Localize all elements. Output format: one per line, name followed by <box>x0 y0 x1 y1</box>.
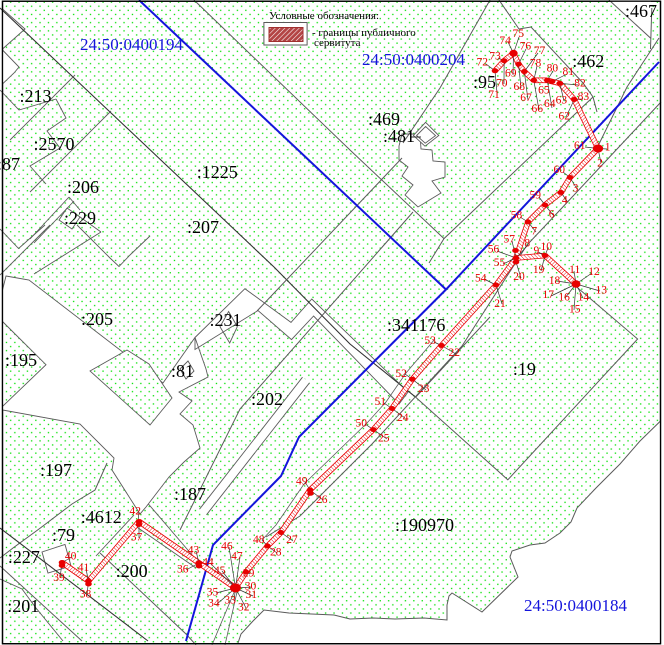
svg-text:18: 18 <box>549 275 561 287</box>
svg-text:35: 35 <box>207 587 219 599</box>
svg-text::229: :229 <box>64 208 96 228</box>
svg-text:7: 7 <box>531 225 537 237</box>
svg-text:78: 78 <box>530 57 542 69</box>
svg-text:68: 68 <box>514 81 526 93</box>
svg-text:61: 61 <box>574 140 586 152</box>
svg-text:40: 40 <box>65 551 77 563</box>
svg-text:82: 82 <box>574 78 586 90</box>
svg-text:33: 33 <box>224 595 236 607</box>
svg-text:36: 36 <box>177 564 189 576</box>
svg-text:6: 6 <box>549 209 555 221</box>
svg-text:42: 42 <box>129 506 141 518</box>
svg-text:75: 75 <box>513 28 525 40</box>
svg-text:29: 29 <box>243 568 255 580</box>
svg-text::1225: :1225 <box>197 162 238 182</box>
svg-text::231: :231 <box>210 310 242 330</box>
svg-text:51: 51 <box>375 396 387 408</box>
svg-text:14: 14 <box>578 292 590 304</box>
svg-text:48: 48 <box>253 534 265 546</box>
svg-text:43: 43 <box>188 545 200 557</box>
svg-text:26: 26 <box>316 494 328 506</box>
svg-text:3: 3 <box>573 183 579 195</box>
svg-text:8: 8 <box>524 237 530 249</box>
svg-text::190970: :190970 <box>395 515 454 535</box>
svg-text:58: 58 <box>511 210 523 222</box>
svg-text:сервитута: сервитута <box>314 37 361 49</box>
svg-text:44: 44 <box>202 557 214 569</box>
svg-text:50: 50 <box>355 418 367 430</box>
svg-text:39: 39 <box>53 572 65 584</box>
svg-text:10: 10 <box>540 241 552 253</box>
svg-text::19: :19 <box>513 359 536 379</box>
svg-text:28: 28 <box>270 547 282 559</box>
svg-text:63: 63 <box>556 95 568 107</box>
svg-text:32: 32 <box>238 601 250 613</box>
svg-text:1: 1 <box>605 141 611 153</box>
svg-text:13: 13 <box>595 284 607 296</box>
svg-text::195: :195 <box>5 350 37 370</box>
svg-text:4: 4 <box>562 195 568 207</box>
svg-text::201: :201 <box>7 596 39 616</box>
svg-text::467: :467 <box>625 1 657 21</box>
svg-text::207: :207 <box>187 217 219 237</box>
svg-text::481: :481 <box>383 126 415 146</box>
svg-text:66: 66 <box>531 103 543 115</box>
svg-text:54: 54 <box>475 272 487 284</box>
svg-text:67: 67 <box>520 92 532 104</box>
svg-text:57: 57 <box>504 234 516 246</box>
svg-text:56: 56 <box>488 243 500 255</box>
svg-text::206: :206 <box>67 177 99 197</box>
svg-text::197: :197 <box>40 460 72 480</box>
svg-text:74: 74 <box>499 35 511 47</box>
svg-text:22: 22 <box>448 347 460 359</box>
svg-text:45: 45 <box>214 565 226 577</box>
svg-text:23: 23 <box>418 383 430 395</box>
svg-text:59: 59 <box>530 190 542 202</box>
svg-text::187: :187 <box>174 484 206 504</box>
svg-text:24: 24 <box>397 412 409 424</box>
svg-text:53: 53 <box>424 335 436 347</box>
svg-text:34: 34 <box>208 597 220 609</box>
svg-text:24:50:0400184: 24:50:0400184 <box>524 596 627 615</box>
svg-text:11: 11 <box>569 264 580 276</box>
svg-text:52: 52 <box>395 368 407 380</box>
svg-text:19: 19 <box>533 264 545 276</box>
svg-text:41: 41 <box>78 562 90 574</box>
svg-text::462: :462 <box>572 51 604 71</box>
svg-text:20: 20 <box>513 271 525 283</box>
svg-text:27: 27 <box>286 534 298 546</box>
svg-text:65: 65 <box>538 84 550 96</box>
svg-text::341176: :341176 <box>387 315 445 335</box>
svg-text:60: 60 <box>553 164 565 176</box>
svg-text:72: 72 <box>476 57 488 69</box>
svg-text:37: 37 <box>131 531 143 543</box>
svg-text:25: 25 <box>378 433 390 445</box>
svg-text:47: 47 <box>231 551 243 563</box>
svg-text:24:50:0400204: 24:50:0400204 <box>362 50 465 69</box>
svg-text::2570: :2570 <box>34 134 75 154</box>
svg-text:49: 49 <box>296 475 308 487</box>
svg-text::4612: :4612 <box>81 507 122 527</box>
svg-text::205: :205 <box>81 309 113 329</box>
svg-text:15: 15 <box>569 304 581 316</box>
svg-text:73: 73 <box>489 51 501 63</box>
svg-text:16: 16 <box>558 292 570 304</box>
svg-text:64: 64 <box>544 98 556 110</box>
svg-text:81: 81 <box>562 66 574 78</box>
svg-text:77: 77 <box>534 45 546 57</box>
svg-text:31: 31 <box>246 589 258 601</box>
svg-text:9: 9 <box>534 245 540 257</box>
svg-text:80: 80 <box>547 63 559 75</box>
svg-text:55: 55 <box>494 257 506 269</box>
svg-text:76: 76 <box>520 41 532 53</box>
svg-text:46: 46 <box>221 540 233 552</box>
svg-text:Условные обозначения:: Условные обозначения: <box>269 10 379 22</box>
svg-text:71: 71 <box>488 89 500 101</box>
svg-text:2: 2 <box>597 158 603 170</box>
svg-text:21: 21 <box>494 298 506 310</box>
svg-text:38: 38 <box>80 588 92 600</box>
svg-text:12: 12 <box>588 266 600 278</box>
svg-text:17: 17 <box>542 289 554 301</box>
svg-text::81: :81 <box>171 361 194 381</box>
svg-text::227: :227 <box>8 547 40 567</box>
svg-text::79: :79 <box>52 525 75 545</box>
svg-text::213: :213 <box>20 86 52 106</box>
svg-text:83: 83 <box>578 91 590 103</box>
svg-text::200: :200 <box>116 561 148 581</box>
svg-text:24:50:0400194: 24:50:0400194 <box>80 35 183 54</box>
svg-text:62: 62 <box>558 110 570 122</box>
svg-text::202: :202 <box>251 389 283 409</box>
